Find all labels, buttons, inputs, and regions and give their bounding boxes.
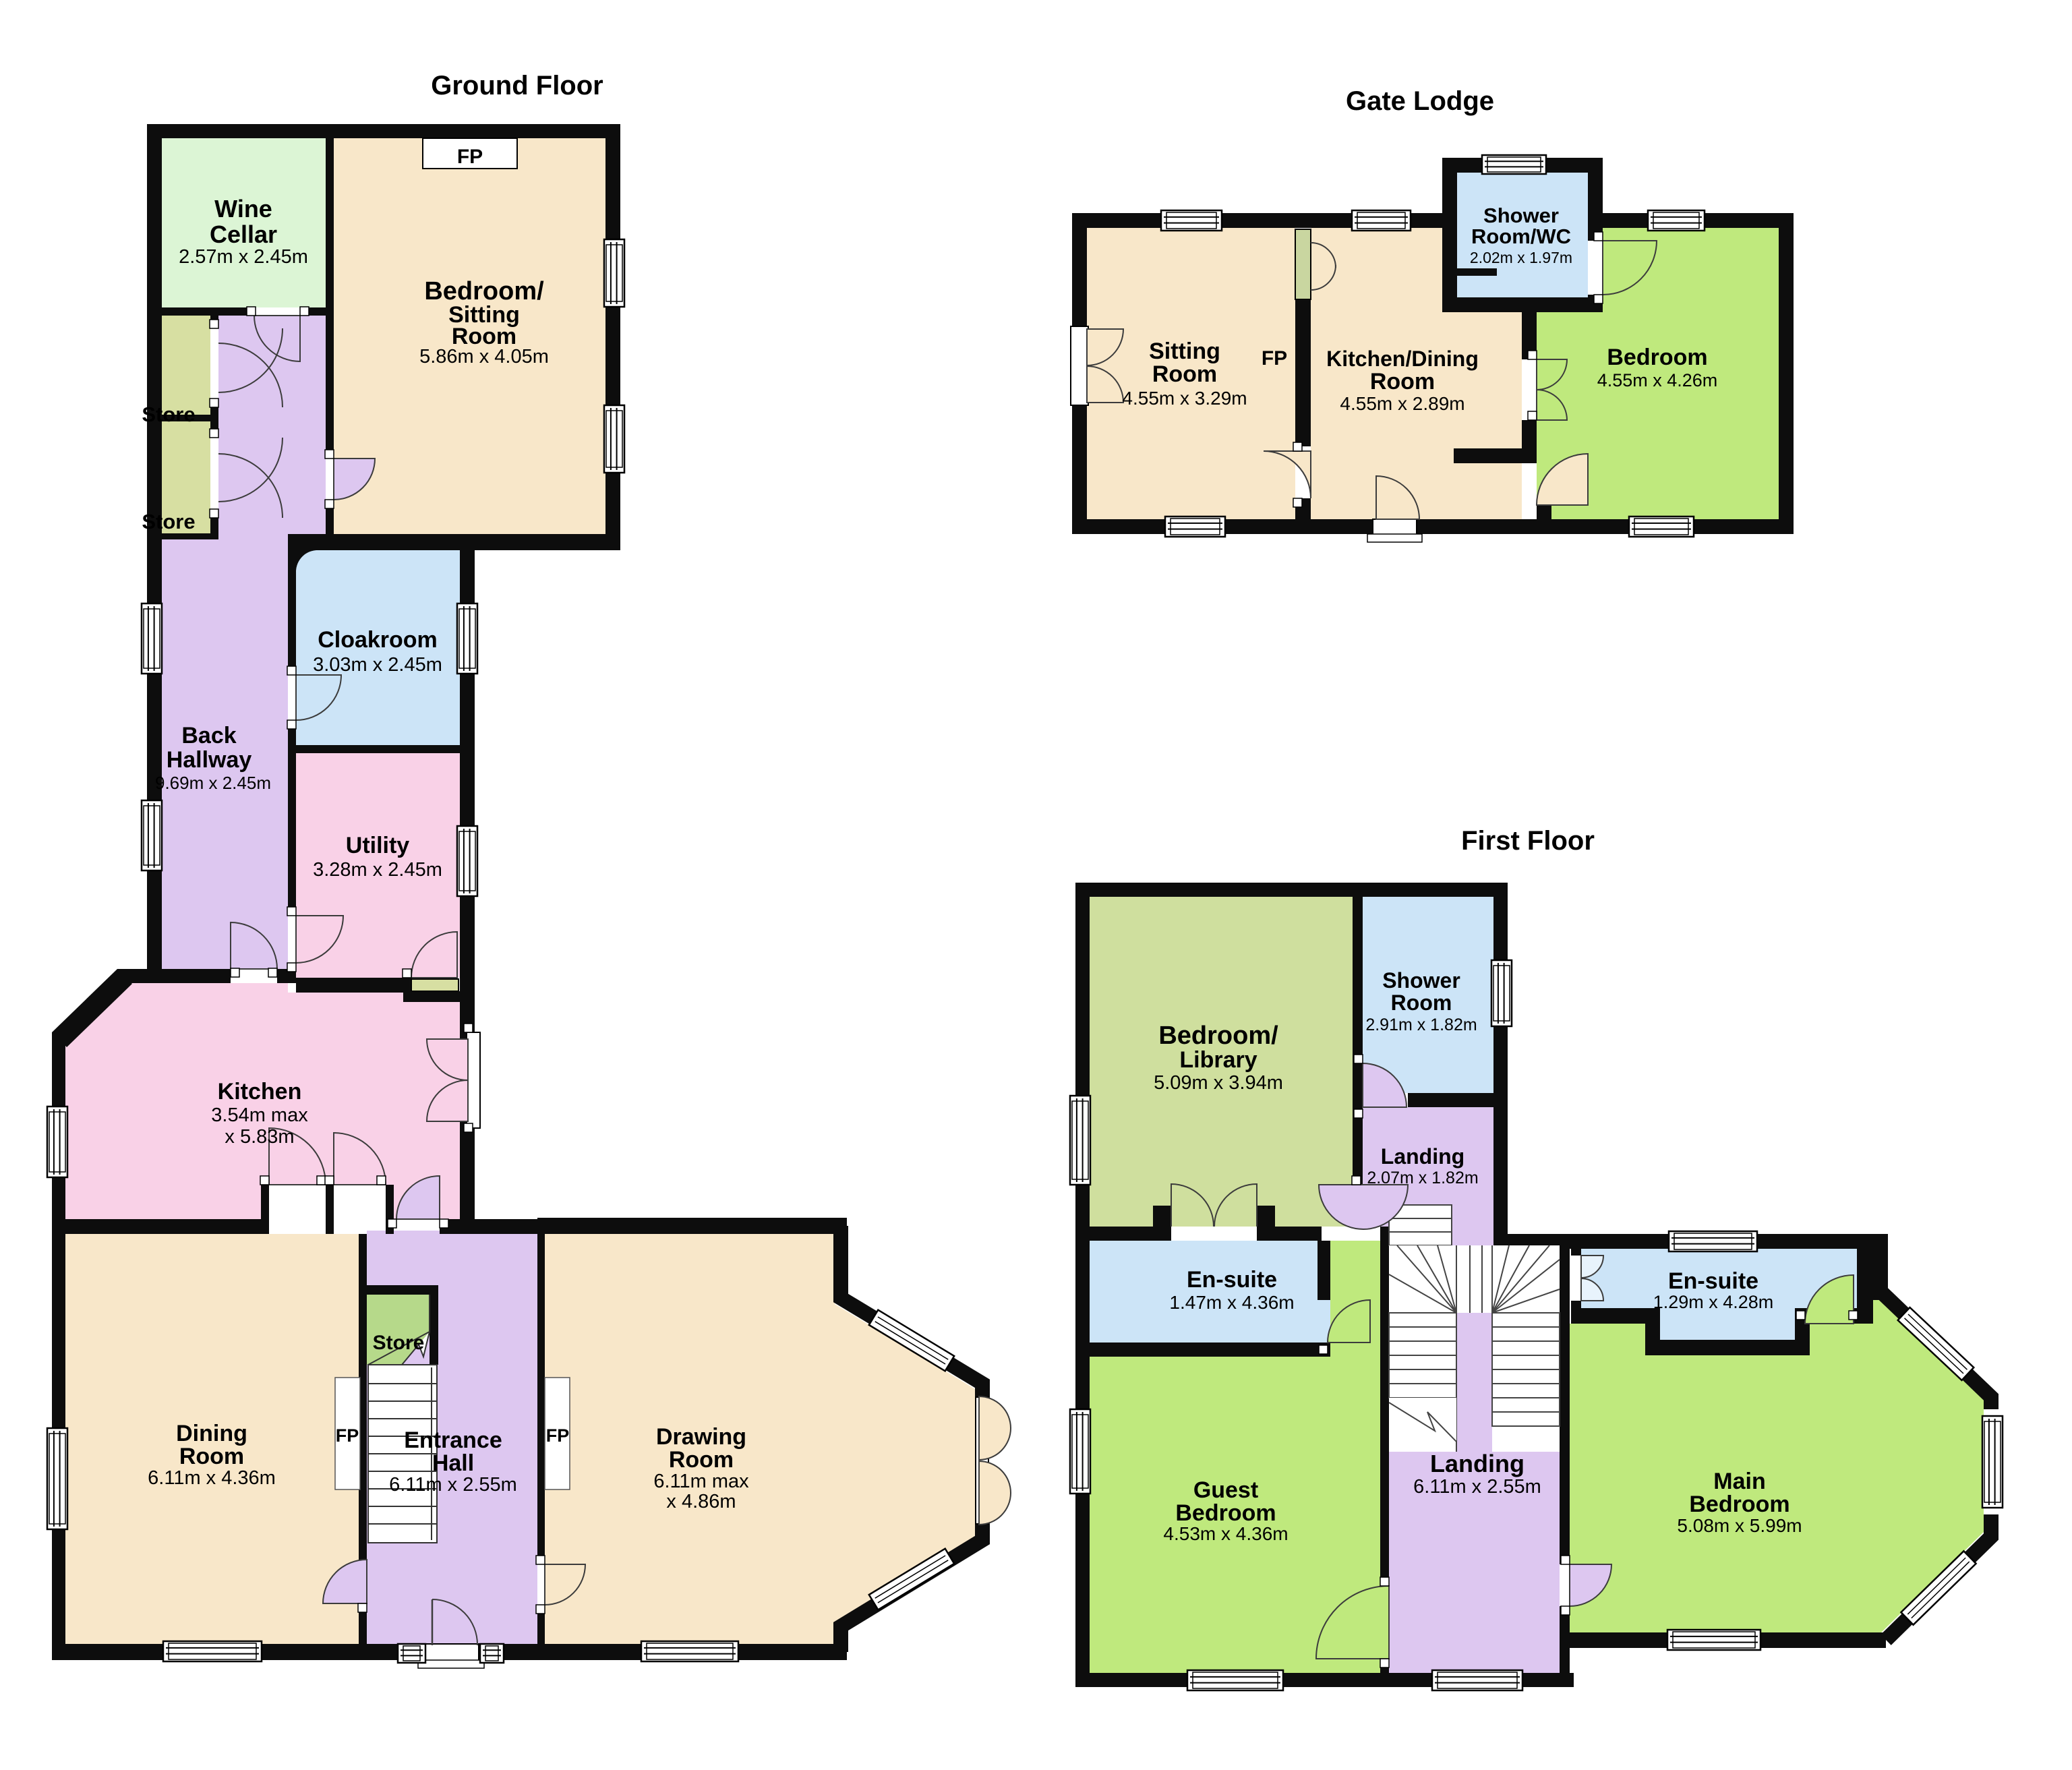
svg-text:4.55m x 3.29m: 4.55m x 3.29m	[1122, 388, 1247, 409]
svg-text:Store: Store	[142, 403, 195, 426]
svg-text:Room: Room	[1152, 361, 1217, 387]
svg-text:4.55m x 4.26m: 4.55m x 4.26m	[1597, 370, 1718, 390]
svg-text:2.07m x 1.82m: 2.07m x 1.82m	[1367, 1169, 1478, 1187]
svg-text:Room: Room	[179, 1444, 244, 1469]
svg-text:FP: FP	[1262, 347, 1287, 370]
svg-text:5.86m x 4.05m: 5.86m x 4.05m	[419, 346, 549, 367]
svg-text:6.11m x 2.55m: 6.11m x 2.55m	[1413, 1476, 1541, 1498]
svg-text:3.28m x 2.45m: 3.28m x 2.45m	[313, 859, 442, 881]
svg-text:Library: Library	[1179, 1047, 1257, 1073]
svg-text:Wine: Wine	[214, 195, 272, 223]
svg-text:Dining: Dining	[176, 1421, 247, 1446]
svg-text:Bedroom: Bedroom	[1689, 1492, 1789, 1517]
svg-text:1.47m x 4.36m: 1.47m x 4.36m	[1169, 1292, 1294, 1313]
svg-text:3.54m max: 3.54m max	[211, 1104, 308, 1126]
svg-text:FP: FP	[336, 1425, 359, 1446]
svg-text:Room: Room	[1370, 369, 1435, 394]
svg-text:FP: FP	[546, 1425, 570, 1446]
svg-text:4.55m x 2.89m: 4.55m x 2.89m	[1340, 393, 1464, 414]
svg-text:1.29m x 4.28m: 1.29m x 4.28m	[1653, 1292, 1774, 1312]
svg-text:Main: Main	[1713, 1469, 1765, 1494]
svg-text:Hall: Hall	[432, 1450, 474, 1476]
svg-text:Bedroom/: Bedroom/	[1158, 1022, 1278, 1050]
svg-text:Room: Room	[669, 1447, 734, 1473]
svg-text:Cloakroom: Cloakroom	[318, 627, 438, 653]
svg-text:2.02m x 1.97m: 2.02m x 1.97m	[1470, 249, 1572, 266]
svg-text:Back: Back	[181, 723, 236, 748]
svg-text:En-suite: En-suite	[1668, 1268, 1758, 1294]
svg-text:6.11m x 4.36m: 6.11m x 4.36m	[148, 1467, 276, 1489]
svg-text:Landing: Landing	[1381, 1144, 1464, 1169]
svg-text:2.57m x 2.45m: 2.57m x 2.45m	[179, 246, 308, 268]
svg-text:Store: Store	[373, 1332, 425, 1354]
svg-text:x 4.86m: x 4.86m	[666, 1491, 736, 1512]
svg-text:6.11m x 2.55m: 6.11m x 2.55m	[389, 1474, 517, 1496]
svg-text:5.08m x 5.99m: 5.08m x 5.99m	[1677, 1515, 1802, 1536]
svg-text:Guest: Guest	[1193, 1477, 1258, 1503]
svg-text:Bedroom/: Bedroom/	[424, 277, 544, 305]
svg-text:Bedroom: Bedroom	[1607, 345, 1707, 370]
svg-text:Landing: Landing	[1430, 1450, 1525, 1477]
svg-text:Room/WC: Room/WC	[1471, 225, 1571, 248]
svg-text:Entrance: Entrance	[404, 1427, 502, 1453]
svg-text:3.03m x 2.45m: 3.03m x 2.45m	[313, 654, 442, 676]
svg-text:Shower: Shower	[1382, 968, 1460, 993]
svg-text:x 5.83m: x 5.83m	[225, 1126, 294, 1148]
svg-text:Ground Floor: Ground Floor	[431, 71, 603, 100]
svg-text:Kitchen: Kitchen	[218, 1079, 302, 1104]
svg-text:Room: Room	[1391, 991, 1452, 1015]
svg-text:Shower: Shower	[1483, 204, 1559, 227]
svg-text:Cellar: Cellar	[210, 220, 277, 248]
svg-text:9.69m x 2.45m: 9.69m x 2.45m	[155, 773, 271, 793]
svg-text:4.53m x 4.36m: 4.53m x 4.36m	[1163, 1523, 1288, 1544]
svg-text:Gate Lodge: Gate Lodge	[1346, 86, 1494, 116]
svg-text:Hallway: Hallway	[167, 747, 252, 773]
svg-text:Sitting: Sitting	[1149, 338, 1220, 364]
svg-text:Kitchen/Dining: Kitchen/Dining	[1326, 347, 1479, 371]
svg-text:5.09m x 3.94m: 5.09m x 3.94m	[1154, 1072, 1283, 1094]
svg-text:Drawing: Drawing	[656, 1424, 746, 1450]
svg-text:6.11m max: 6.11m max	[653, 1471, 749, 1492]
svg-text:FP: FP	[457, 146, 483, 168]
svg-text:En-suite: En-suite	[1187, 1267, 1277, 1293]
svg-text:2.91m x 1.82m: 2.91m x 1.82m	[1365, 1015, 1477, 1034]
svg-text:Store: Store	[142, 510, 195, 533]
svg-text:Utility: Utility	[346, 833, 410, 858]
svg-text:Bedroom: Bedroom	[1175, 1500, 1276, 1526]
svg-text:First Floor: First Floor	[1461, 826, 1595, 856]
